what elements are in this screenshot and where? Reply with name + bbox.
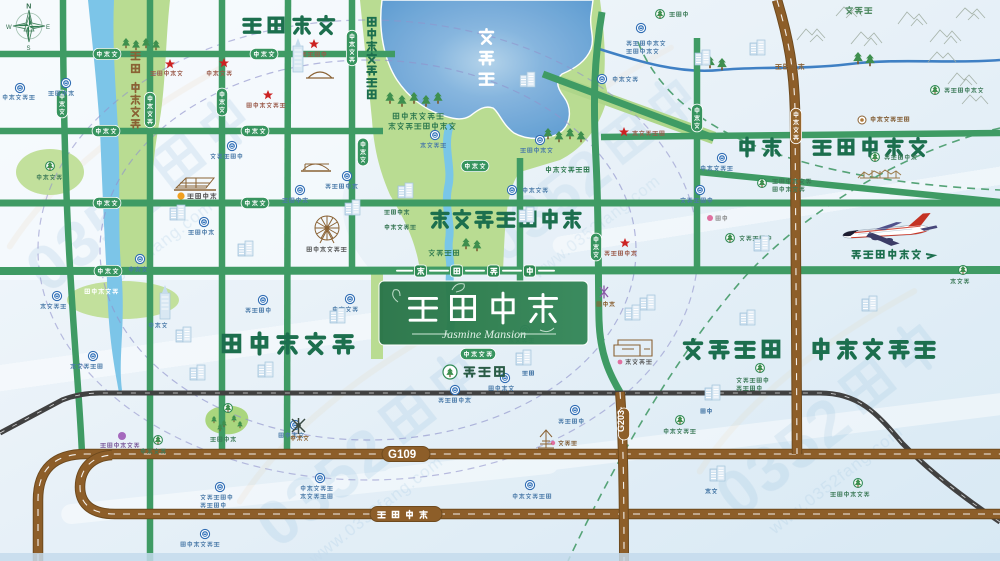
- svg-text:N: N: [26, 4, 31, 11]
- svg-text:Jasmine Mansion: Jasmine Mansion: [442, 327, 526, 341]
- svg-text:S: S: [27, 46, 31, 52]
- svg-text:W: W: [6, 25, 12, 31]
- svg-text:G203: G203: [616, 410, 626, 432]
- svg-text:G109: G109: [388, 449, 416, 461]
- svg-text:E: E: [46, 25, 50, 31]
